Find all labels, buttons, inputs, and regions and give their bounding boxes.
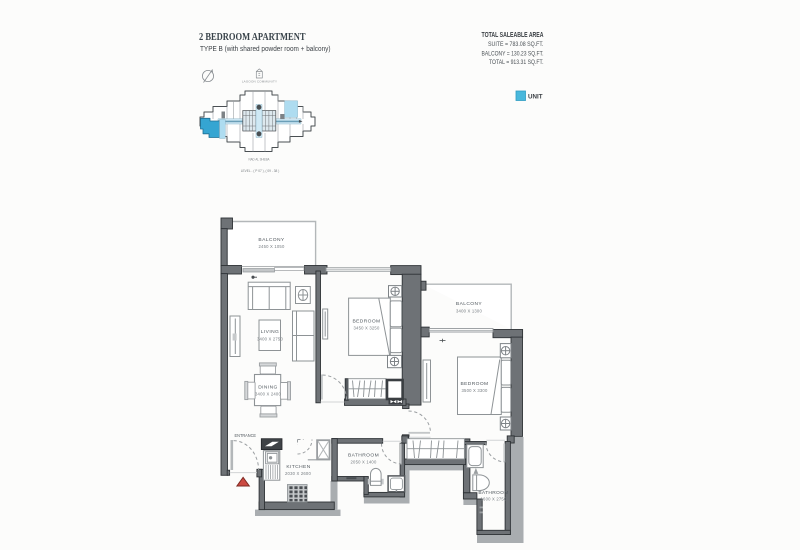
svg-text:UNIT: UNIT xyxy=(528,93,543,100)
svg-text:3400 X 2750: 3400 X 2750 xyxy=(257,336,283,341)
svg-text:LAGOON COMMUNITY: LAGOON COMMUNITY xyxy=(242,80,277,84)
svg-text:3400 X 2400: 3400 X 2400 xyxy=(255,392,281,397)
svg-text:BALCONY = 130.23 SQ.FT.: BALCONY = 130.23 SQ.FT. xyxy=(482,50,544,57)
svg-text:TYPE B (with shared powder roo: TYPE B (with shared powder room + balcon… xyxy=(200,46,331,53)
svg-text:3500 X 3300: 3500 X 3300 xyxy=(462,388,488,393)
svg-text:2 BEDROOM APARTMENT: 2 BEDROOM APARTMENT xyxy=(199,32,306,43)
svg-text:LEVEL - ( P 07 ), ( 09 - 38 ): LEVEL - ( P 07 ), ( 09 - 38 ) xyxy=(241,168,280,173)
svg-text:DINING: DINING xyxy=(258,384,278,390)
svg-text:TOTAL = 913.31 SQ.FT.: TOTAL = 913.31 SQ.FT. xyxy=(489,59,544,66)
svg-text:2450 X 1050: 2450 X 1050 xyxy=(259,244,285,249)
svg-text:3450 X 3250: 3450 X 3250 xyxy=(354,326,380,331)
svg-text:KITCHEN: KITCHEN xyxy=(286,464,310,470)
svg-text:BEDROOM: BEDROOM xyxy=(460,381,488,387)
svg-text:2030 X 2600: 2030 X 2600 xyxy=(285,471,311,476)
svg-text:3400 X 1300: 3400 X 1300 xyxy=(456,309,482,314)
svg-text:BEDROOM: BEDROOM xyxy=(352,318,380,324)
svg-text:BALCONY: BALCONY xyxy=(456,301,483,307)
svg-text:LIVING: LIVING xyxy=(261,329,279,335)
svg-text:1600 X 2750: 1600 X 2750 xyxy=(481,497,507,502)
svg-text:ENTRANCE: ENTRANCE xyxy=(235,433,257,439)
svg-text:2050 X 1400: 2050 X 1400 xyxy=(351,460,377,465)
svg-text:BATHROOM: BATHROOM xyxy=(348,453,379,459)
svg-text:NAD AL SHEBA: NAD AL SHEBA xyxy=(249,158,270,162)
svg-text:SUITE = 783.08 SQ.FT.: SUITE = 783.08 SQ.FT. xyxy=(488,41,544,48)
svg-text:TOTAL SALEABLE AREA: TOTAL SALEABLE AREA xyxy=(482,32,544,39)
svg-text:BALCONY: BALCONY xyxy=(258,237,285,243)
svg-text:BATHROOM: BATHROOM xyxy=(478,490,508,496)
